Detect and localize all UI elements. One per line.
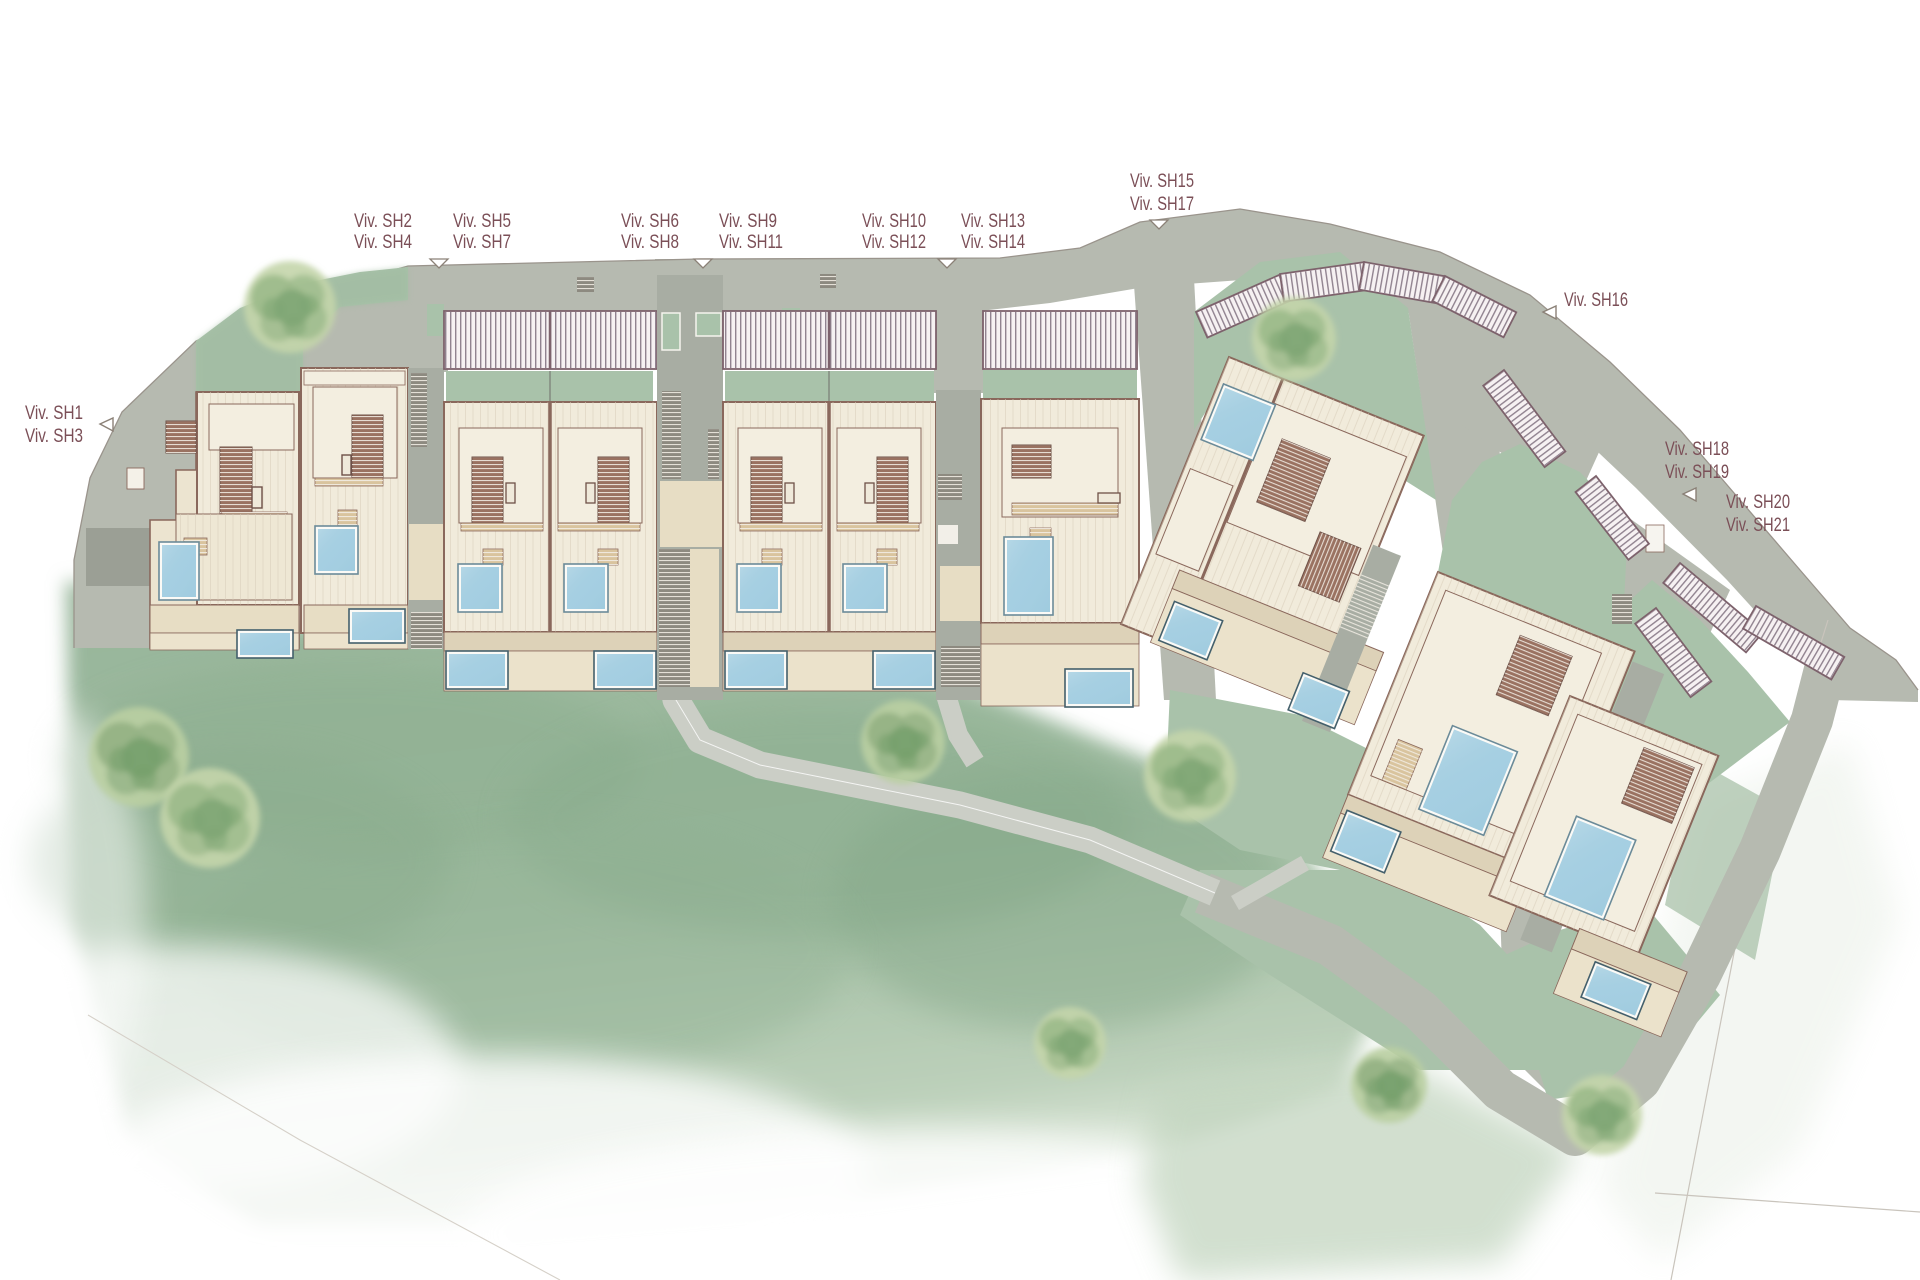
svg-text:Viv. SH10: Viv. SH10	[862, 210, 926, 232]
svg-text:Viv. SH11: Viv. SH11	[719, 231, 783, 253]
svg-text:Viv. SH1: Viv. SH1	[25, 402, 83, 424]
svg-text:Viv. SH8: Viv. SH8	[621, 231, 679, 253]
svg-text:Viv. SH4: Viv. SH4	[354, 231, 412, 253]
svg-text:Viv. SH21: Viv. SH21	[1726, 514, 1790, 536]
svg-text:Viv. SH7: Viv. SH7	[453, 231, 511, 253]
svg-text:Viv. SH16: Viv. SH16	[1564, 289, 1628, 311]
svg-text:Viv. SH14: Viv. SH14	[961, 231, 1025, 253]
svg-text:Viv. SH19: Viv. SH19	[1665, 461, 1729, 483]
svg-text:Viv. SH3: Viv. SH3	[25, 425, 83, 447]
svg-text:Viv. SH9: Viv. SH9	[719, 210, 777, 232]
svg-text:Viv. SH5: Viv. SH5	[453, 210, 511, 232]
svg-text:Viv. SH6: Viv. SH6	[621, 210, 679, 232]
svg-text:Viv. SH20: Viv. SH20	[1726, 491, 1790, 513]
svg-text:Viv. SH13: Viv. SH13	[961, 210, 1025, 232]
svg-text:Viv. SH15: Viv. SH15	[1130, 170, 1194, 192]
svg-text:Viv. SH18: Viv. SH18	[1665, 438, 1729, 460]
svg-text:Viv. SH12: Viv. SH12	[862, 231, 926, 253]
svg-text:Viv. SH17: Viv. SH17	[1130, 193, 1194, 215]
svg-text:Viv. SH2: Viv. SH2	[354, 210, 412, 232]
